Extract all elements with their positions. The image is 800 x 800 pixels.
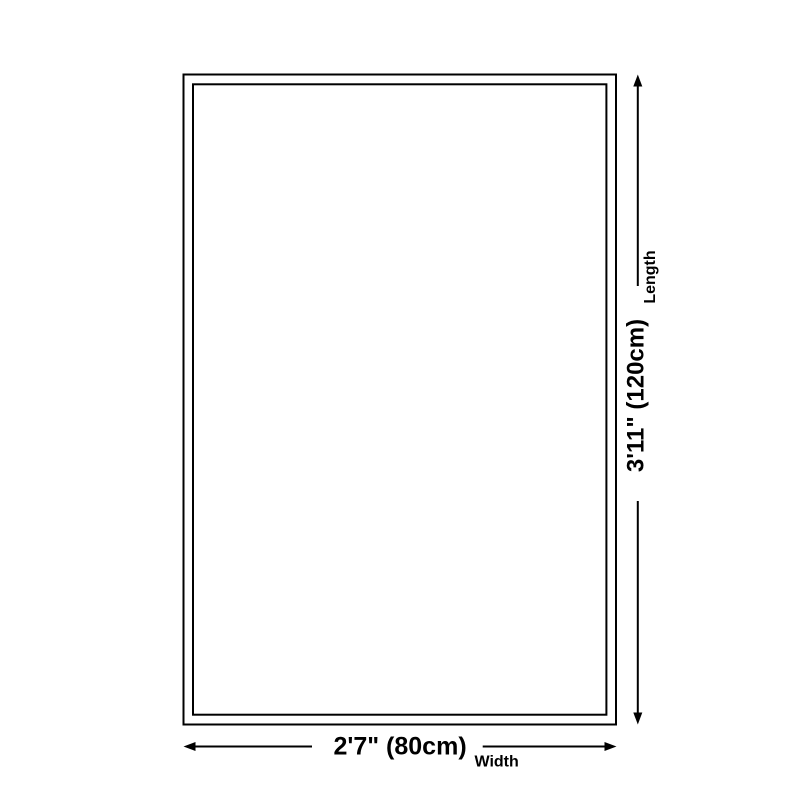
svg-text:Length: Length [642,250,659,303]
svg-text:Width: Width [475,754,519,771]
svg-text:3'11" (120cm): 3'11" (120cm) [623,319,650,472]
svg-text:2'7" (80cm): 2'7" (80cm) [334,733,467,761]
